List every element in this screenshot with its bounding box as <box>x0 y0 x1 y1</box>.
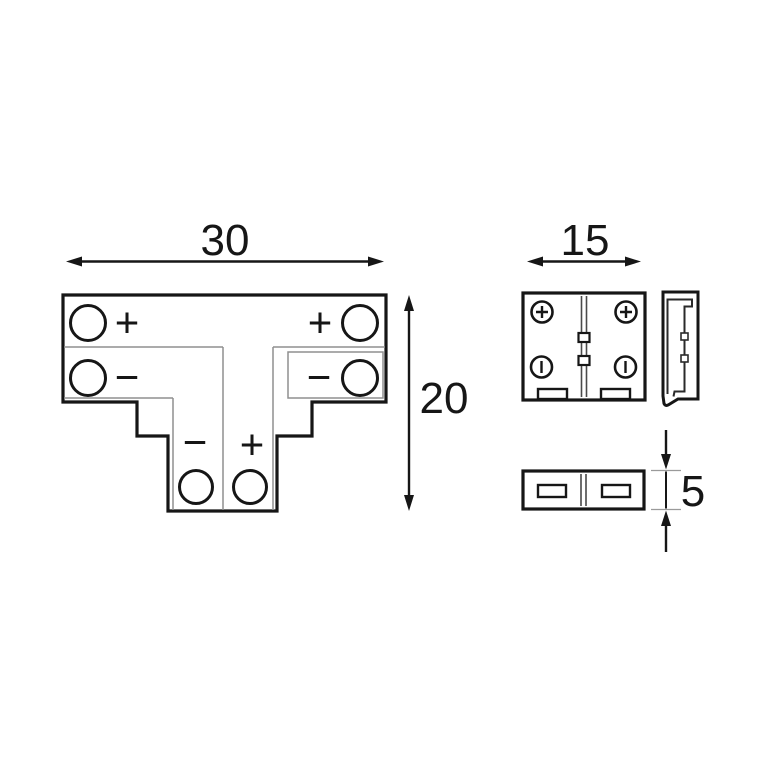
dimension-thickness-5: 5 <box>651 430 705 552</box>
polarity-mark: + <box>240 421 265 468</box>
polarity-mark: − <box>115 354 140 401</box>
strip-slot <box>602 485 630 497</box>
plus-screw-icon <box>616 302 637 323</box>
t-connector-drawing: + + − − − + 30 20 <box>0 0 767 767</box>
polarity-mark: + <box>308 299 333 346</box>
arrowhead-left-icon <box>66 257 82 267</box>
seam-bridge <box>579 333 590 342</box>
pad-top-right <box>343 306 378 341</box>
top-view-t-connector: + + − − − + <box>63 295 386 511</box>
pad-top-left <box>71 306 106 341</box>
arrowhead-down-icon <box>404 495 414 511</box>
arrowhead-left-icon <box>527 257 543 267</box>
slot-screw-icon <box>531 357 552 378</box>
dim-value-width: 30 <box>201 216 250 265</box>
pad-mid-left <box>71 361 106 396</box>
bottom-notch <box>601 389 630 399</box>
strip-slot <box>538 485 566 497</box>
seam-bridge <box>681 333 688 340</box>
t-body-outline <box>63 295 386 511</box>
dim-value-front-width: 15 <box>561 216 610 265</box>
pad-stem-right <box>234 471 267 504</box>
arrowhead-up-icon <box>661 511 671 527</box>
arrowhead-right-icon <box>368 257 384 267</box>
arrowhead-down-icon <box>661 454 671 470</box>
dimension-front-width-15: 15 <box>527 216 641 267</box>
dim-value-height: 20 <box>420 374 469 423</box>
side-view-profile <box>663 292 698 405</box>
polarity-mark: − <box>307 354 332 401</box>
seam-bridge <box>579 356 590 365</box>
dim-value-thickness: 5 <box>681 467 705 516</box>
arrowhead-up-icon <box>404 295 414 311</box>
pad-stem-left <box>180 471 213 504</box>
bottom-notch <box>538 389 567 399</box>
dimension-height-20: 20 <box>404 295 468 511</box>
edge-view-connector <box>523 471 644 509</box>
polarity-mark: − <box>183 419 208 466</box>
plus-screw-icon <box>532 302 553 323</box>
arrowhead-right-icon <box>625 257 641 267</box>
front-view-connector <box>523 293 645 400</box>
pad-mid-right <box>343 361 378 396</box>
slot-screw-icon <box>615 357 636 378</box>
seam-bridge <box>681 355 688 362</box>
polarity-mark: + <box>115 299 140 346</box>
technical-drawing-page: + + − − − + 30 20 <box>0 0 767 767</box>
dimension-width-30: 30 <box>66 216 384 267</box>
